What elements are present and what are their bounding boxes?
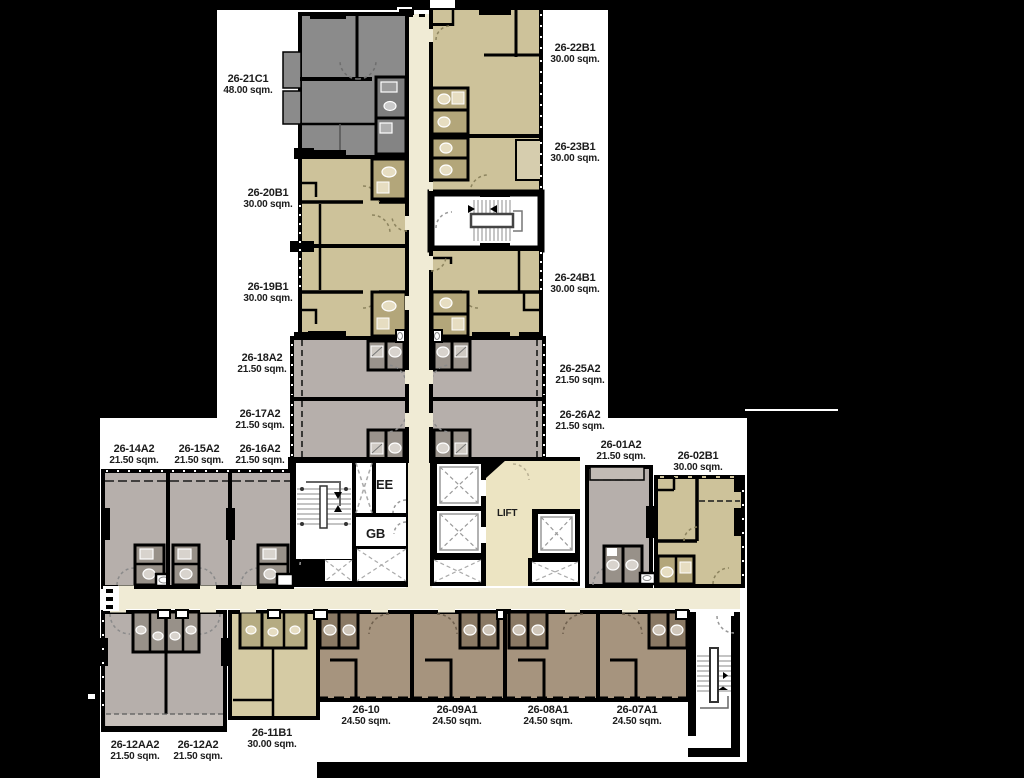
svg-text:26-20B1: 26-20B1 — [248, 187, 289, 199]
svg-text:21.50 sqm.: 21.50 sqm. — [237, 364, 287, 375]
svg-text:26-25A2: 26-25A2 — [560, 363, 601, 375]
svg-text:21.50 sqm.: 21.50 sqm. — [110, 751, 160, 762]
svg-text:26-18A2: 26-18A2 — [242, 352, 283, 364]
svg-text:30.00 sqm.: 30.00 sqm. — [243, 199, 293, 210]
svg-text:26-11B1: 26-11B1 — [252, 727, 292, 739]
svg-text:26-22B1: 26-22B1 — [555, 42, 596, 54]
svg-text:21.50 sqm.: 21.50 sqm. — [235, 455, 285, 466]
svg-text:26-19B1: 26-19B1 — [248, 281, 289, 293]
svg-text:GB: GB — [366, 526, 385, 541]
svg-text:30.00 sqm.: 30.00 sqm. — [550, 153, 600, 164]
svg-text:24.50 sqm.: 24.50 sqm. — [612, 716, 662, 727]
svg-text:26-12AA2: 26-12AA2 — [111, 739, 160, 751]
svg-text:21.50 sqm.: 21.50 sqm. — [174, 455, 224, 466]
svg-text:26-17A2: 26-17A2 — [240, 408, 281, 420]
svg-text:21.50 sqm.: 21.50 sqm. — [109, 455, 159, 466]
svg-text:21.50 sqm.: 21.50 sqm. — [596, 451, 646, 462]
svg-text:30.00 sqm.: 30.00 sqm. — [550, 54, 600, 65]
svg-text:24.50 sqm.: 24.50 sqm. — [523, 716, 573, 727]
svg-text:LIFT: LIFT — [497, 508, 517, 519]
svg-text:26-09A1: 26-09A1 — [437, 704, 478, 716]
svg-text:30.00 sqm.: 30.00 sqm. — [550, 284, 600, 295]
svg-text:21.50 sqm.: 21.50 sqm. — [555, 421, 605, 432]
svg-text:21.50 sqm.: 21.50 sqm. — [173, 751, 223, 762]
svg-text:26-26A2: 26-26A2 — [560, 409, 601, 421]
svg-text:30.00 sqm.: 30.00 sqm. — [247, 739, 297, 750]
svg-text:26-12A2: 26-12A2 — [178, 739, 219, 751]
svg-text:26-08A1: 26-08A1 — [528, 704, 569, 716]
svg-text:30.00 sqm.: 30.00 sqm. — [673, 462, 723, 473]
svg-text:26-23B1: 26-23B1 — [555, 141, 596, 153]
svg-text:26-16A2: 26-16A2 — [240, 443, 281, 455]
svg-text:26-14A2: 26-14A2 — [114, 443, 155, 455]
svg-text:26-01A2: 26-01A2 — [601, 439, 642, 451]
svg-text:26-15A2: 26-15A2 — [179, 443, 220, 455]
svg-text:48.00 sqm.: 48.00 sqm. — [223, 85, 273, 96]
svg-text:21.50 sqm.: 21.50 sqm. — [235, 420, 285, 431]
svg-text:26-21C1: 26-21C1 — [228, 73, 269, 85]
svg-text:24.50 sqm.: 24.50 sqm. — [432, 716, 482, 727]
svg-text:26-24B1: 26-24B1 — [555, 272, 596, 284]
svg-text:30.00 sqm.: 30.00 sqm. — [243, 293, 293, 304]
svg-text:26-02B1: 26-02B1 — [678, 450, 719, 462]
svg-text:26-07A1: 26-07A1 — [617, 704, 658, 716]
svg-text:21.50 sqm.: 21.50 sqm. — [555, 375, 605, 386]
svg-text:26-10: 26-10 — [352, 704, 379, 716]
svg-text:EE: EE — [376, 477, 393, 492]
svg-text:24.50 sqm.: 24.50 sqm. — [341, 716, 391, 727]
